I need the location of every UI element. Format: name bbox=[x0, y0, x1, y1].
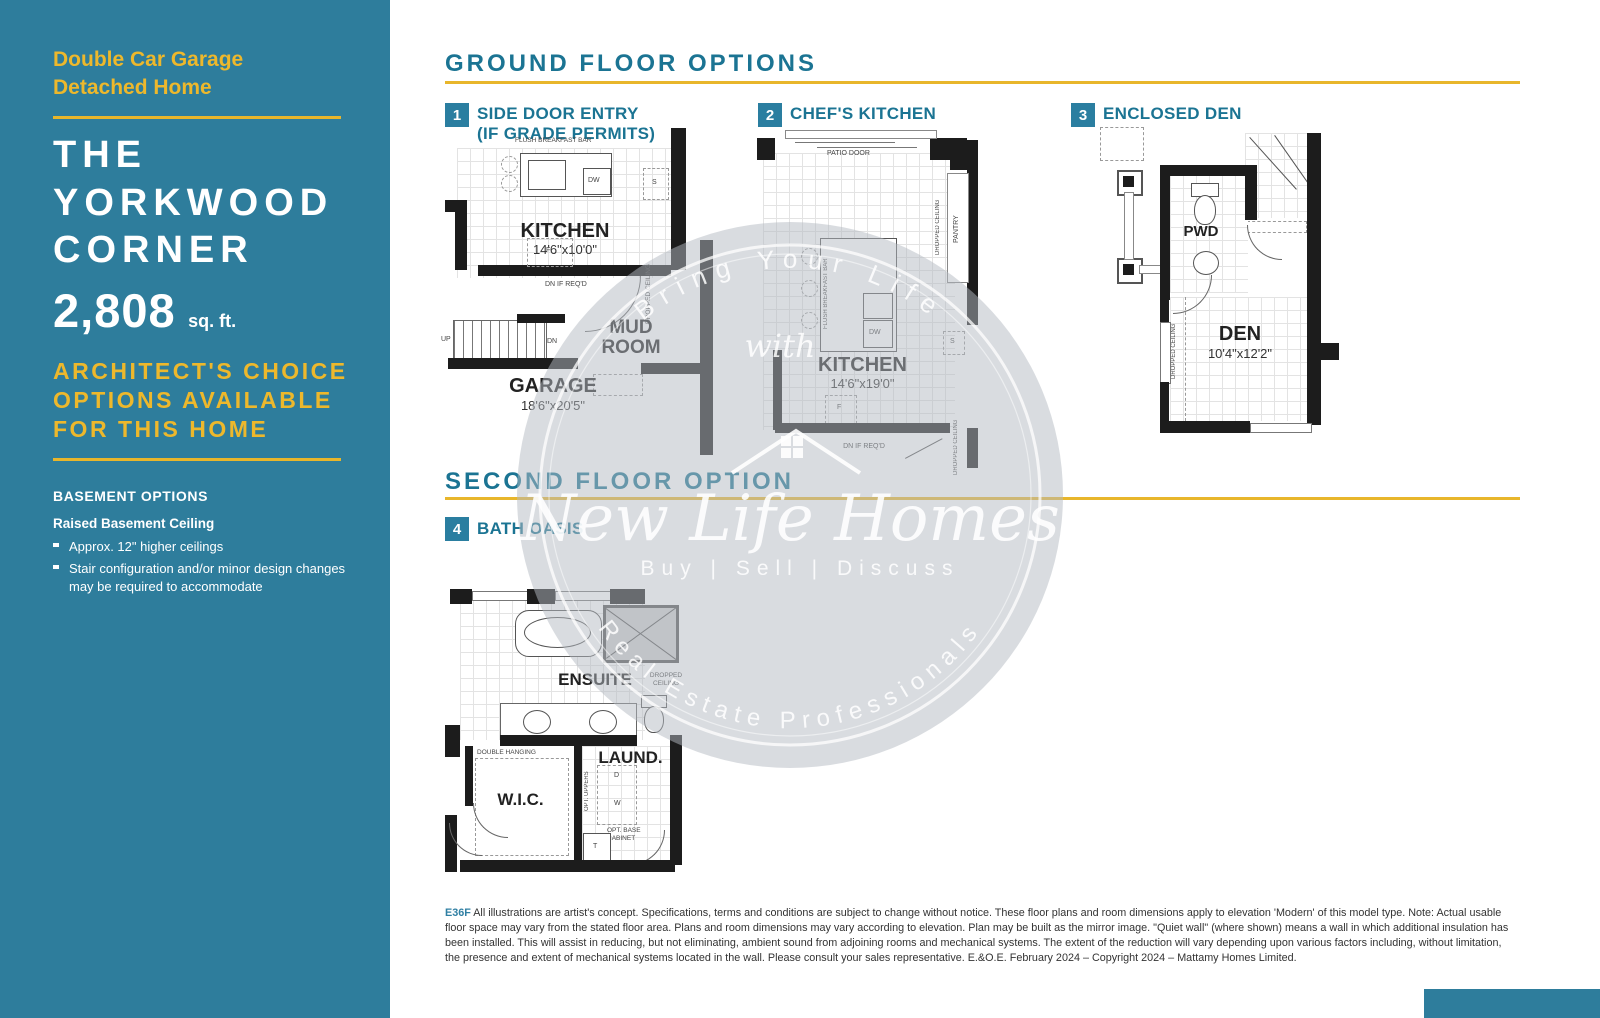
wall bbox=[527, 589, 555, 604]
patio-door-label: PATIO DOOR bbox=[827, 150, 870, 157]
column-core bbox=[1123, 264, 1134, 275]
range-fixture bbox=[528, 160, 566, 190]
wall bbox=[773, 350, 782, 430]
sink-label: S bbox=[950, 338, 955, 345]
garage-label: GARAGE bbox=[493, 375, 613, 398]
fridge-label: F bbox=[837, 404, 841, 411]
tub-label: T bbox=[593, 843, 597, 850]
sink-basin bbox=[523, 710, 551, 734]
wall bbox=[610, 589, 645, 604]
option-1-badge: 1 bbox=[445, 103, 469, 127]
dropped-ceiling-label: DROPPED CEILING bbox=[1171, 320, 1177, 382]
corner-accent-bar bbox=[1424, 989, 1600, 1018]
porch-rail bbox=[1124, 192, 1134, 260]
basement-bullet-2-text: Stair configuration and/or minor design … bbox=[69, 561, 345, 594]
flush-breakfast-bar-label: FLUSH BREAKFAST BAR bbox=[823, 246, 829, 341]
wall bbox=[445, 725, 460, 757]
option-4-label: BATH OASIS bbox=[477, 519, 584, 539]
floor-plan-side-door-entry: FLUSH BREAKFAST BAR DW S KITCHEN 14'6"x1… bbox=[445, 128, 713, 468]
wall bbox=[1160, 165, 1170, 300]
dishwasher: DW bbox=[583, 168, 611, 195]
second-section-rule bbox=[445, 497, 1520, 500]
window bbox=[472, 591, 529, 601]
laundry-tub: T bbox=[583, 833, 611, 863]
den-label: DEN bbox=[1180, 323, 1300, 346]
toilet-bowl bbox=[1194, 195, 1216, 225]
staircase bbox=[453, 320, 547, 362]
second-floor-option-title: SECOND FLOOR OPTION bbox=[445, 468, 794, 496]
pwd-label: PWD bbox=[1171, 223, 1231, 240]
sink-basin bbox=[1193, 251, 1219, 275]
dryer-label: D bbox=[614, 772, 619, 779]
wall bbox=[671, 128, 686, 270]
plan-code: E36F bbox=[445, 907, 471, 919]
ground-section-rule bbox=[445, 81, 1520, 84]
dn-if-reqd-label: DN IF REQ'D bbox=[843, 443, 885, 450]
option-2-label: CHEF'S KITCHEN bbox=[790, 104, 936, 124]
sqft-value: 2,808 bbox=[53, 284, 176, 337]
wall bbox=[1160, 300, 1169, 322]
dropped-ceiling-label: DROPPED CEILING bbox=[935, 198, 941, 256]
door-swing bbox=[1247, 225, 1282, 260]
dishwasher-label: DW bbox=[869, 329, 881, 336]
dimension-box bbox=[1100, 127, 1144, 161]
washer-dryer-area: D W bbox=[597, 765, 637, 825]
basement-options-heading: BASEMENT OPTIONS bbox=[53, 488, 208, 504]
wall bbox=[450, 589, 472, 604]
bathtub bbox=[515, 610, 602, 657]
sink-basin bbox=[589, 710, 617, 734]
range-fixture bbox=[863, 293, 893, 319]
model-title-line2: YORKWOOD bbox=[53, 180, 333, 228]
wall bbox=[670, 735, 682, 865]
mud-room-line2: ROOM bbox=[583, 338, 679, 358]
sidebar-divider-bottom bbox=[53, 458, 341, 461]
wall bbox=[500, 735, 637, 746]
double-hanging-label: DOUBLE HANGING bbox=[477, 749, 536, 756]
stool-marker bbox=[801, 248, 818, 265]
stool-marker bbox=[801, 280, 818, 297]
wall bbox=[574, 746, 582, 866]
window bbox=[1250, 423, 1312, 433]
legal-disclaimer: E36F All illustrations are artist's conc… bbox=[445, 906, 1513, 966]
garage-dims: 18'6"x20'5" bbox=[493, 398, 613, 413]
home-type-subtitle: Double Car Garage Detached Home bbox=[53, 46, 243, 102]
wall bbox=[641, 363, 700, 374]
wall bbox=[1307, 133, 1321, 425]
floor-plan-bath-oasis: ENSUITE DROPPED CEILING DOUBLE HANGING W… bbox=[445, 575, 695, 890]
wall bbox=[455, 200, 467, 270]
pantry-label: PANTRY bbox=[953, 213, 960, 245]
architects-choice-line2: OPTIONS AVAILABLE bbox=[53, 386, 348, 415]
wall bbox=[1160, 165, 1255, 176]
dishwasher-label: DW bbox=[588, 177, 600, 184]
sink-cabinet: S bbox=[943, 331, 965, 355]
basement-bullet-1-text: Approx. 12" higher ceilings bbox=[69, 539, 223, 554]
bullet-marker bbox=[53, 543, 59, 547]
wall bbox=[967, 428, 978, 468]
model-title-line3: CORNER bbox=[53, 227, 333, 275]
patio-door-line bbox=[795, 142, 895, 143]
basement-option-title: Raised Basement Ceiling bbox=[53, 516, 214, 531]
shower bbox=[603, 605, 679, 663]
model-title-line1: THE bbox=[53, 132, 333, 180]
square-footage: 2,808 sq. ft. bbox=[53, 283, 236, 338]
stool-marker bbox=[501, 156, 518, 173]
mud-room-label: MUD ROOM bbox=[583, 318, 679, 358]
sink-label: S bbox=[652, 179, 657, 186]
window bbox=[555, 591, 612, 601]
patio-door-line bbox=[817, 147, 917, 148]
disclaimer-text: All illustrations are artist's concept. … bbox=[445, 907, 1508, 964]
den-dims: 10'4"x12'2" bbox=[1180, 346, 1300, 361]
option-2-badge: 2 bbox=[758, 103, 782, 127]
ground-floor-options-title: GROUND FLOOR OPTIONS bbox=[445, 50, 817, 78]
sidebar-divider-top bbox=[53, 116, 341, 119]
architects-choice-heading: ARCHITECT'S CHOICE OPTIONS AVAILABLE FOR… bbox=[53, 357, 348, 443]
home-type-line1: Double Car Garage bbox=[53, 46, 243, 74]
dn-if-reqd-label: DN IF REQ'D bbox=[545, 281, 587, 288]
floor-plan-enclosed-den: PWD DEN 10'4"x12'2" DROPPED CEILING bbox=[1075, 125, 1345, 445]
opt-uppers-label: OPT. UPPERS bbox=[584, 767, 590, 815]
dropped-ceiling-label: DROPPED CEILING bbox=[645, 672, 687, 688]
wall bbox=[775, 423, 950, 433]
option-3-badge: 3 bbox=[1071, 103, 1095, 127]
bullet-marker bbox=[53, 565, 59, 569]
wall bbox=[517, 314, 565, 323]
dn-label: DN bbox=[547, 338, 557, 345]
wall bbox=[460, 860, 675, 872]
option-1-label-line1: SIDE DOOR ENTRY bbox=[477, 104, 655, 124]
wall bbox=[478, 265, 671, 276]
option-3-label: ENCLOSED DEN bbox=[1103, 104, 1242, 124]
kitchen-room-dims: 14'6"x19'0" bbox=[805, 376, 920, 391]
architects-choice-line3: FOR THIS HOME bbox=[53, 415, 348, 444]
wall-bumpout bbox=[1321, 343, 1339, 360]
toilet-bowl bbox=[644, 706, 664, 733]
patio-door-frame bbox=[785, 130, 937, 139]
window bbox=[1160, 322, 1171, 384]
column-core bbox=[1123, 176, 1134, 187]
floor-plan-chefs-kitchen: PATIO DOOR DROPPED CEILING PANTRY FLUSH … bbox=[755, 128, 985, 473]
wall bbox=[465, 746, 473, 806]
mud-room-line1: MUD bbox=[583, 318, 679, 338]
basement-bullet-2: Stair configuration and/or minor design … bbox=[53, 560, 359, 595]
basement-bullet-1: Approx. 12" higher ceilings bbox=[53, 538, 359, 556]
sink-cabinet: S bbox=[643, 168, 669, 200]
flush-breakfast-bar-label: FLUSH BREAKFAST BAR bbox=[515, 137, 591, 144]
architects-choice-line1: ARCHITECT'S CHOICE bbox=[53, 357, 348, 386]
bathtub-basin bbox=[524, 617, 591, 648]
wall bbox=[448, 358, 578, 369]
washer-label: W bbox=[614, 800, 621, 807]
dropped-ceiling-label2: DROPPED CEILING bbox=[953, 433, 959, 475]
dropped-ceiling-line bbox=[1185, 297, 1187, 421]
kitchen-room-label: KITCHEN bbox=[805, 354, 920, 377]
vanity-counter bbox=[500, 703, 637, 739]
sqft-unit: sq. ft. bbox=[188, 311, 236, 331]
home-type-line2: Detached Home bbox=[53, 74, 243, 102]
wall bbox=[757, 138, 775, 160]
fridge: F bbox=[527, 238, 573, 267]
up-label: UP bbox=[441, 336, 451, 343]
door-line bbox=[905, 438, 943, 459]
sidebar-panel: Double Car Garage Detached Home THE YORK… bbox=[0, 0, 390, 1018]
stool-marker bbox=[501, 175, 518, 192]
wall bbox=[1245, 165, 1257, 220]
ensuite-label: ENSUITE bbox=[540, 670, 650, 690]
model-title: THE YORKWOOD CORNER bbox=[53, 132, 333, 275]
stool-marker bbox=[801, 312, 818, 329]
wall bbox=[700, 240, 713, 455]
wall bbox=[1160, 421, 1250, 433]
fridge-label: F bbox=[546, 247, 550, 254]
option-4-badge: 4 bbox=[445, 517, 469, 541]
fridge: F bbox=[825, 395, 857, 424]
dishwasher: DW bbox=[863, 320, 893, 348]
